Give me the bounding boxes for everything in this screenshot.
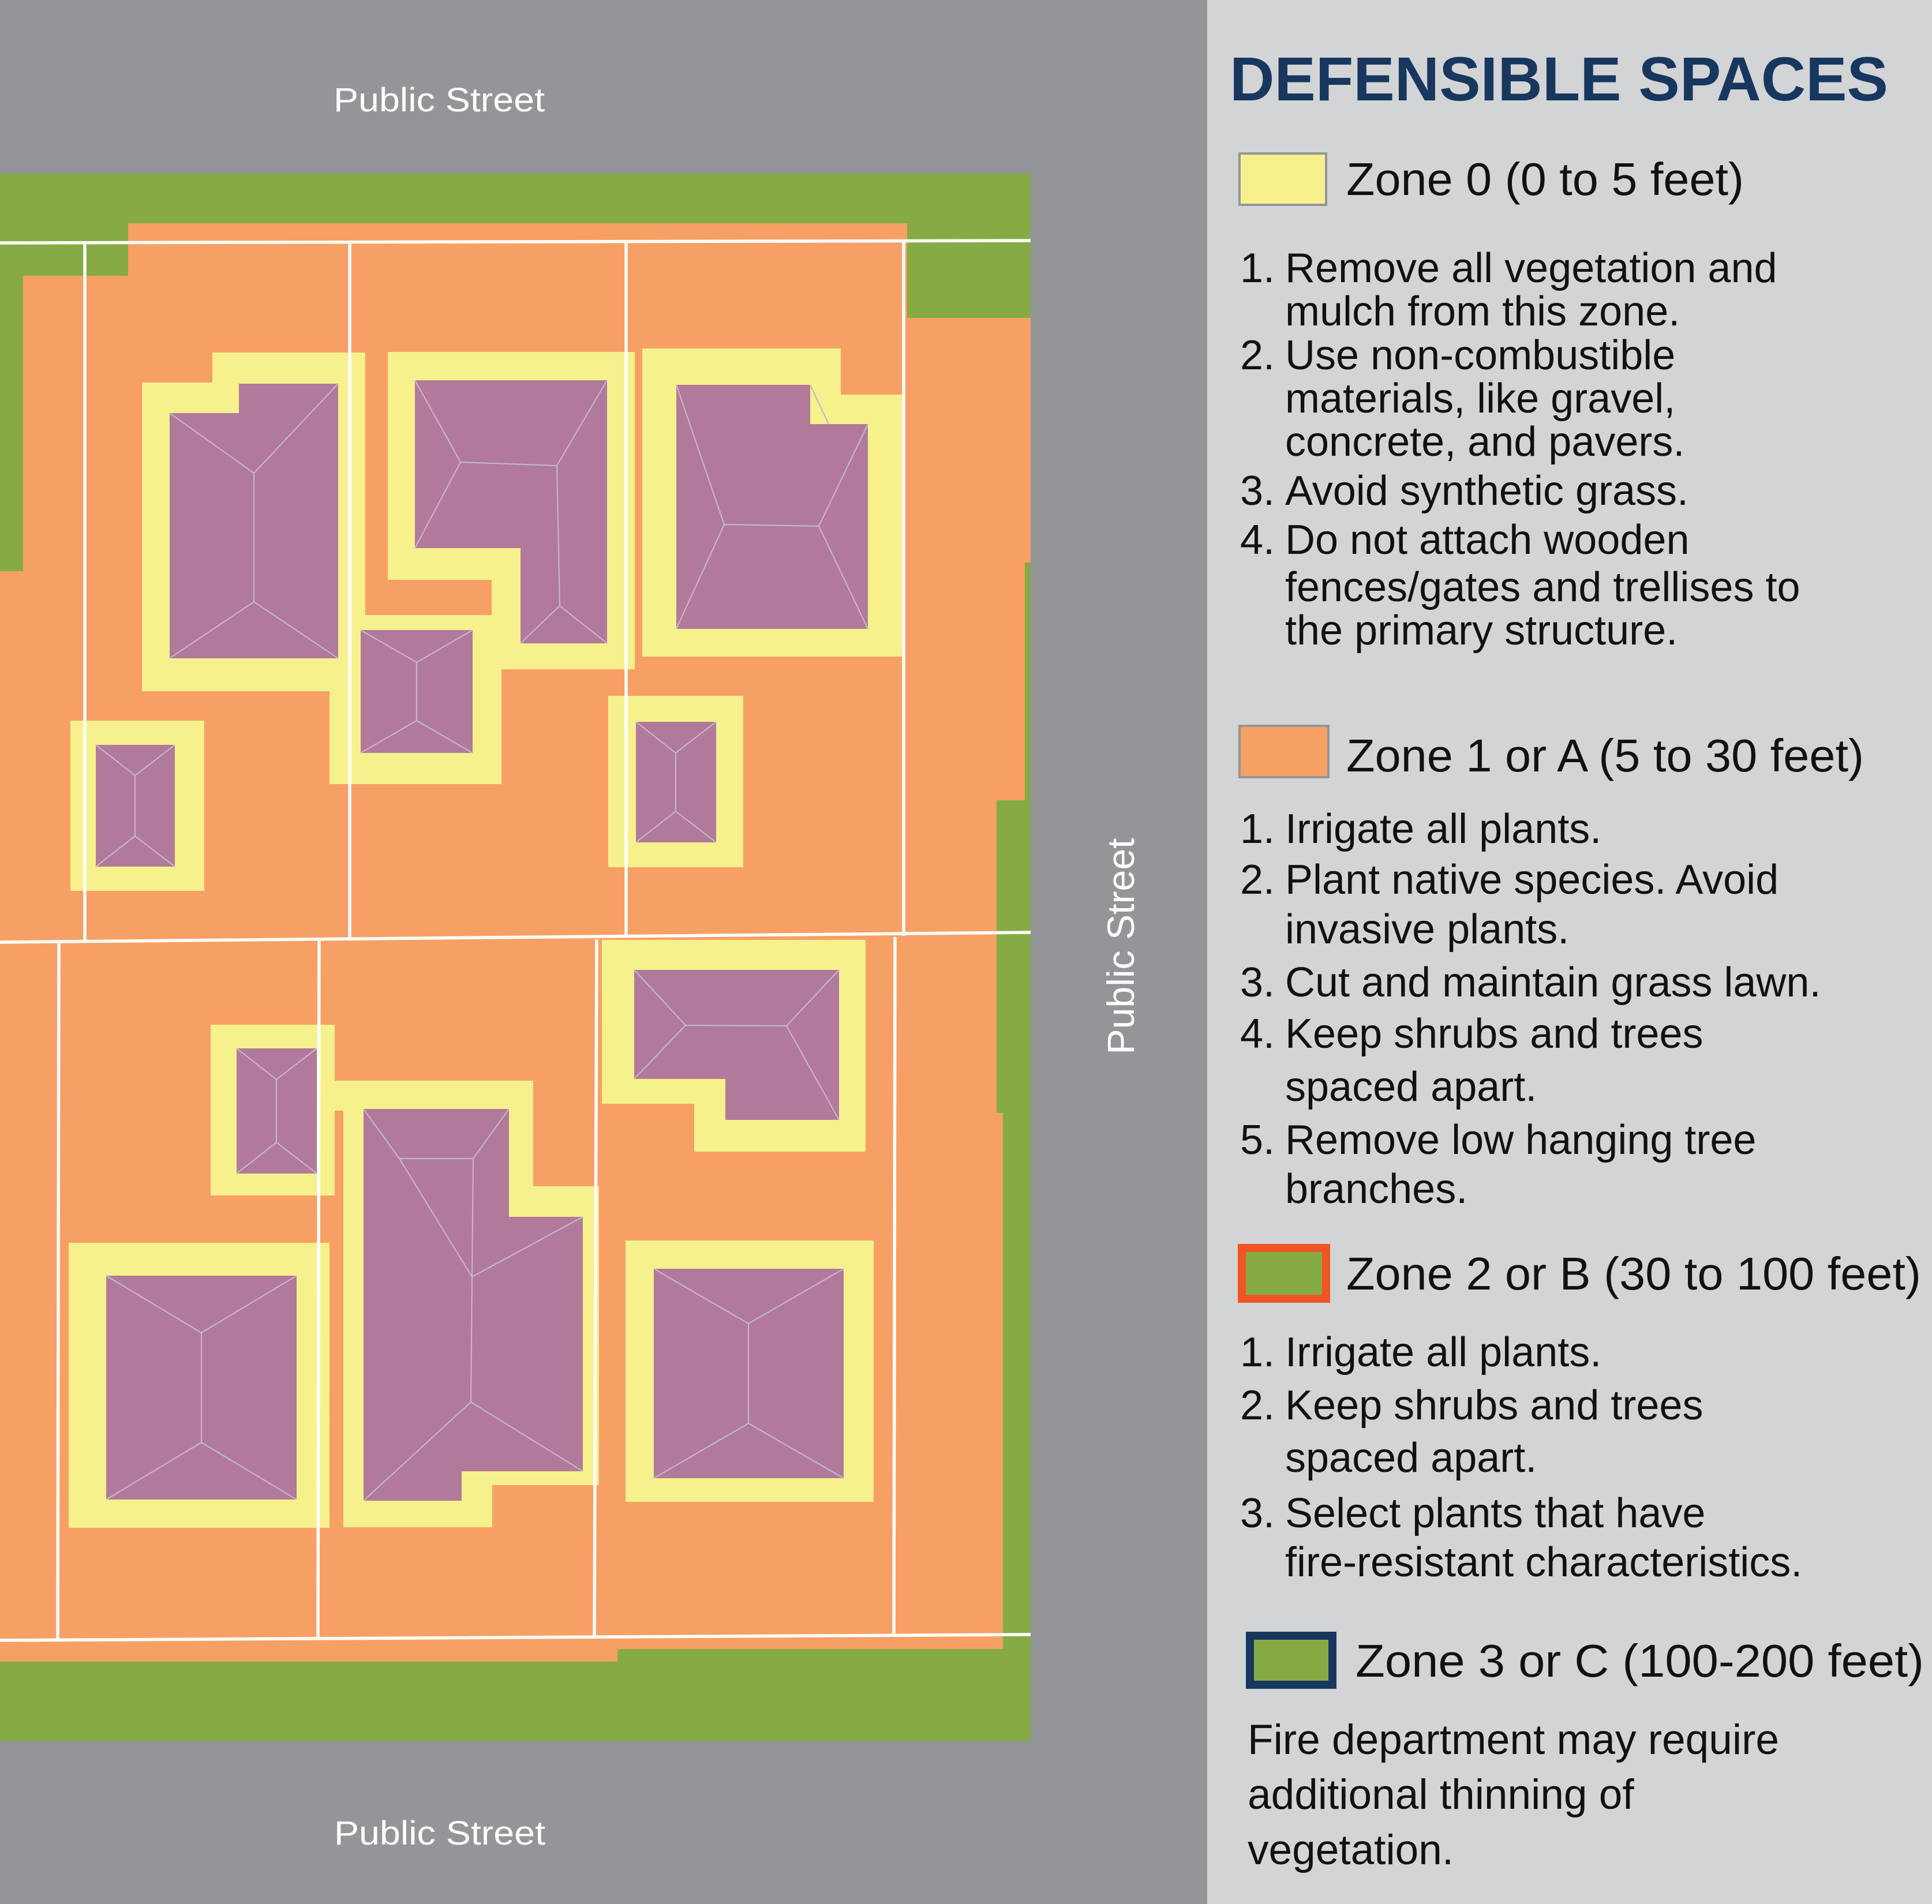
svg-text:Zone 3 or C (100-200 feet): Zone 3 or C (100-200 feet) <box>1356 1635 1924 1686</box>
svg-text:Fire department may require: Fire department may require <box>1248 1716 1779 1763</box>
svg-text:Plant native species. Avoid: Plant native species. Avoid <box>1285 857 1779 903</box>
svg-text:1.: 1. <box>1240 806 1275 852</box>
svg-text:Cut and maintain grass lawn.: Cut and maintain grass lawn. <box>1285 960 1821 1006</box>
svg-text:spaced apart.: spaced apart. <box>1285 1064 1537 1110</box>
svg-text:additional thinning of: additional thinning of <box>1248 1771 1634 1818</box>
svg-text:the primary structure.: the primary structure. <box>1285 608 1678 654</box>
svg-text:Public Street: Public Street <box>334 81 545 119</box>
svg-text:spaced apart.: spaced apart. <box>1285 1435 1537 1481</box>
svg-text:Zone 1 or A (5 to 30 feet): Zone 1 or A (5 to 30 feet) <box>1346 730 1864 781</box>
svg-text:materials, like gravel,: materials, like gravel, <box>1285 376 1675 422</box>
svg-text:3.: 3. <box>1240 468 1275 514</box>
svg-text:Remove low hanging tree: Remove low hanging tree <box>1285 1117 1756 1163</box>
svg-text:fences/gates and trellises to: fences/gates and trellises to <box>1285 564 1800 610</box>
svg-text:Do not attach wooden: Do not attach wooden <box>1285 517 1690 563</box>
svg-text:5.: 5. <box>1240 1117 1275 1163</box>
svg-text:Keep shrubs and trees: Keep shrubs and trees <box>1285 1011 1703 1057</box>
svg-text:Public Street: Public Street <box>1099 838 1142 1055</box>
svg-text:DEFENSIBLE SPACES: DEFENSIBLE SPACES <box>1230 44 1888 114</box>
svg-text:3.: 3. <box>1240 960 1275 1006</box>
svg-text:fire-resistant characteristics: fire-resistant characteristics. <box>1285 1539 1802 1586</box>
svg-text:Use non-combustible: Use non-combustible <box>1285 332 1675 378</box>
svg-text:4.: 4. <box>1240 517 1275 563</box>
svg-text:2.: 2. <box>1240 1382 1275 1429</box>
svg-text:vegetation.: vegetation. <box>1248 1827 1454 1873</box>
svg-text:Avoid synthetic grass.: Avoid synthetic grass. <box>1285 468 1688 514</box>
svg-text:Zone 2 or B (30 to 100 feet): Zone 2 or B (30 to 100 feet) <box>1346 1248 1921 1299</box>
svg-text:3.: 3. <box>1240 1490 1275 1536</box>
svg-text:mulch from this zone.: mulch from this zone. <box>1285 288 1680 335</box>
svg-text:2.: 2. <box>1240 332 1275 378</box>
svg-text:invasive plants.: invasive plants. <box>1285 906 1569 953</box>
svg-text:1.: 1. <box>1240 1329 1275 1375</box>
svg-text:Remove all vegetation and: Remove all vegetation and <box>1285 245 1777 291</box>
svg-text:2.: 2. <box>1240 857 1275 903</box>
svg-text:4.: 4. <box>1240 1011 1275 1057</box>
svg-text:1.: 1. <box>1240 245 1275 291</box>
svg-text:Irrigate all plants.: Irrigate all plants. <box>1285 1329 1601 1375</box>
svg-text:Public Street: Public Street <box>334 1815 545 1852</box>
svg-text:branches.: branches. <box>1285 1166 1467 1212</box>
svg-text:concrete, and pavers.: concrete, and pavers. <box>1285 419 1684 465</box>
svg-text:Keep shrubs and trees: Keep shrubs and trees <box>1285 1382 1703 1429</box>
svg-text:Irrigate all plants.: Irrigate all plants. <box>1285 806 1601 852</box>
svg-text:Zone 0 (0 to 5 feet): Zone 0 (0 to 5 feet) <box>1346 153 1744 205</box>
svg-text:Select plants that have: Select plants that have <box>1285 1490 1705 1536</box>
